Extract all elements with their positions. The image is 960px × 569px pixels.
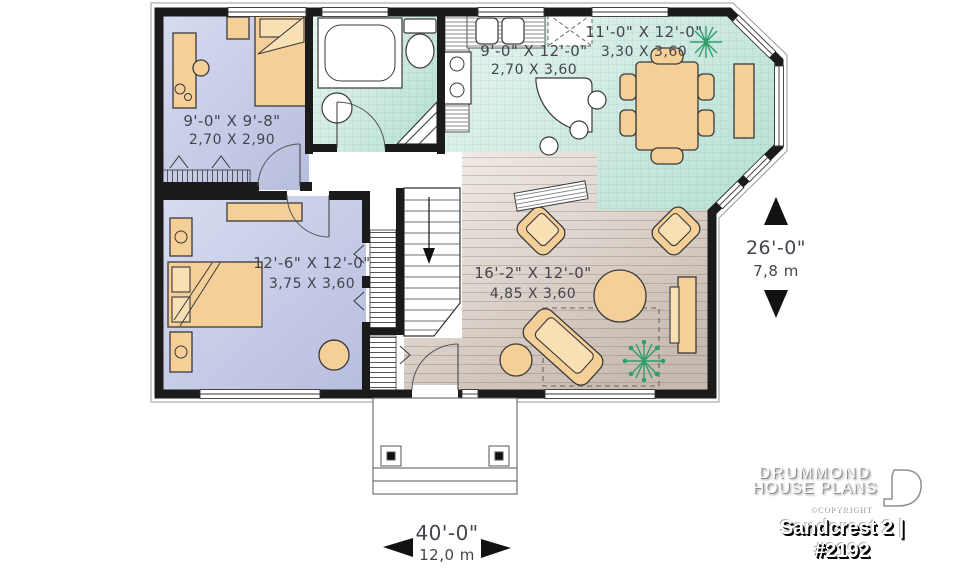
depth-dim-metric: 7,8 m xyxy=(753,262,799,280)
porch-step xyxy=(373,468,517,481)
toilet-tank xyxy=(404,19,436,33)
window xyxy=(592,8,668,17)
porch-step xyxy=(373,481,517,494)
logo-text-line1: DRUMMOND xyxy=(752,466,878,481)
plant-icon xyxy=(623,340,664,381)
logo-text-line2: HOUSE PLANS xyxy=(752,481,878,496)
breakfast-chair xyxy=(540,137,558,155)
arrow-right-icon xyxy=(481,539,511,558)
stair-outline xyxy=(404,188,460,336)
toilet-bowl xyxy=(406,34,434,68)
front-porch xyxy=(373,398,517,494)
window xyxy=(200,390,320,399)
kitchen-dims-metric: 2,70 X 3,60 xyxy=(491,62,577,78)
drummond-d-icon xyxy=(880,466,926,510)
breakfast-chair xyxy=(588,91,606,109)
sink-basin-right xyxy=(502,18,524,44)
ottoman xyxy=(500,344,532,376)
nightstand xyxy=(227,17,249,39)
staircase xyxy=(404,188,460,336)
porch-post-core xyxy=(495,452,503,460)
tv xyxy=(670,287,679,343)
bedroom-master-dims-metric: 3,75 X 3,60 xyxy=(269,276,355,292)
width-dim-imperial: 40'-0" xyxy=(415,521,478,545)
pillow xyxy=(172,267,190,292)
dining-chair xyxy=(620,74,636,100)
dining-table xyxy=(636,62,698,150)
sink-basin-left xyxy=(476,18,498,44)
width-dim-metric: 12,0 m xyxy=(419,546,475,564)
desk-chair xyxy=(193,60,209,76)
window xyxy=(462,390,478,399)
front-door-opening xyxy=(412,385,458,399)
arrow-up-icon xyxy=(764,197,788,225)
living-dims-metric: 4,85 X 3,60 xyxy=(490,286,576,302)
dining-dims-metric: 3,30 X 3,60 xyxy=(601,44,687,60)
window xyxy=(775,66,784,146)
floor-plan-page: 9'-0" X 9'-8" 2,70 X 2,90 9'-0" X 12'-0"… xyxy=(0,0,960,569)
dining-chair xyxy=(651,148,683,164)
window xyxy=(545,390,655,399)
dining-dims-imperial: 11'-0" X 12'-0" xyxy=(585,23,702,41)
bedroom-top-dims-imperial: 9'-0" X 9'-8" xyxy=(183,112,280,130)
copyright-text: ©COPYRIGHT xyxy=(806,505,876,514)
depth-dim-imperial: 26'-0" xyxy=(746,237,806,259)
round-table xyxy=(594,270,646,322)
arrow-left-icon xyxy=(383,538,413,557)
dining-chair xyxy=(620,110,636,136)
kitchen-dims-imperial: 9'-0" X 12'-0" xyxy=(480,42,587,60)
living-dims-imperial: 16'-2" X 12'-0" xyxy=(474,264,591,282)
nightstand xyxy=(170,218,192,256)
nightstand xyxy=(170,332,192,372)
media-cabinet xyxy=(678,277,696,353)
dining-chair xyxy=(698,74,714,100)
bedroom-closet-shelving xyxy=(370,230,396,328)
drummond-logo: DRUMMOND HOUSE PLANS xyxy=(752,466,878,496)
porch-post-core xyxy=(387,452,395,460)
stove xyxy=(443,52,471,104)
arrow-down-icon xyxy=(764,290,788,318)
breakfast-chair xyxy=(570,121,588,139)
bedroom-top-dims-metric: 2,70 X 2,90 xyxy=(189,132,275,148)
window xyxy=(322,8,388,17)
sideboard xyxy=(734,64,754,138)
window xyxy=(228,8,306,17)
bedroom-master-dims-imperial: 12'-6" X 12'-0" xyxy=(253,254,370,272)
window xyxy=(478,8,544,17)
entry-closet-shelving xyxy=(366,336,396,390)
plan-title: Sandcrest 2 | #2192 xyxy=(756,517,928,563)
dining-chair xyxy=(698,110,714,136)
